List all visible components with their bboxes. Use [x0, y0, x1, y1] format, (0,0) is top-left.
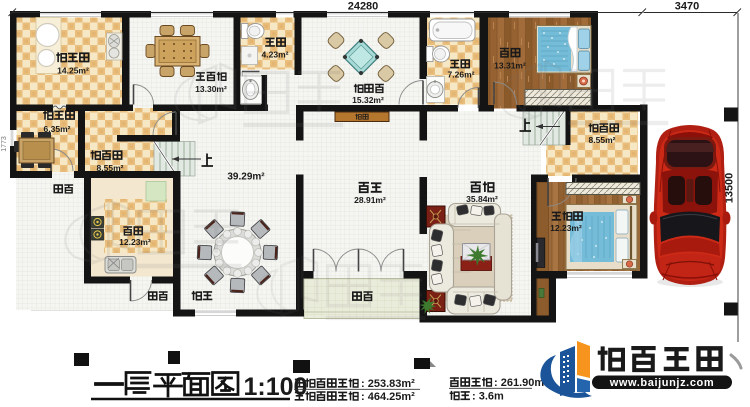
svg-text:28.91m²: 28.91m²: [354, 195, 386, 205]
svg-text:4.23m²: 4.23m²: [262, 50, 289, 60]
svg-text:39.29m²: 39.29m²: [227, 172, 265, 183]
svg-text:: 261.90m²: : 261.90m²: [494, 377, 548, 389]
svg-text:: 3.6m: : 3.6m: [472, 391, 504, 403]
svg-text:14.25m²: 14.25m²: [57, 66, 89, 76]
svg-text:: 464.25m²: : 464.25m²: [361, 391, 415, 403]
svg-text:12.23m²: 12.23m²: [119, 237, 151, 247]
svg-text:7.26m²: 7.26m²: [448, 70, 475, 80]
svg-text:3470: 3470: [675, 1, 699, 13]
svg-text:6.35m²: 6.35m²: [44, 124, 71, 134]
svg-text:: 253.83m²: : 253.83m²: [361, 378, 415, 390]
svg-text:www.baijunjz.com: www.baijunjz.com: [609, 377, 715, 389]
svg-text:8.55m²: 8.55m²: [97, 163, 124, 173]
svg-text:8.55m²: 8.55m²: [589, 135, 616, 145]
svg-text:15.32m²: 15.32m²: [352, 95, 384, 105]
svg-text:12.23m²: 12.23m²: [550, 223, 582, 233]
svg-text:24280: 24280: [348, 1, 379, 13]
svg-text:1773: 1773: [1, 136, 8, 152]
svg-text:35.84m²: 35.84m²: [466, 194, 498, 204]
svg-text:13.31m²: 13.31m²: [494, 61, 526, 71]
